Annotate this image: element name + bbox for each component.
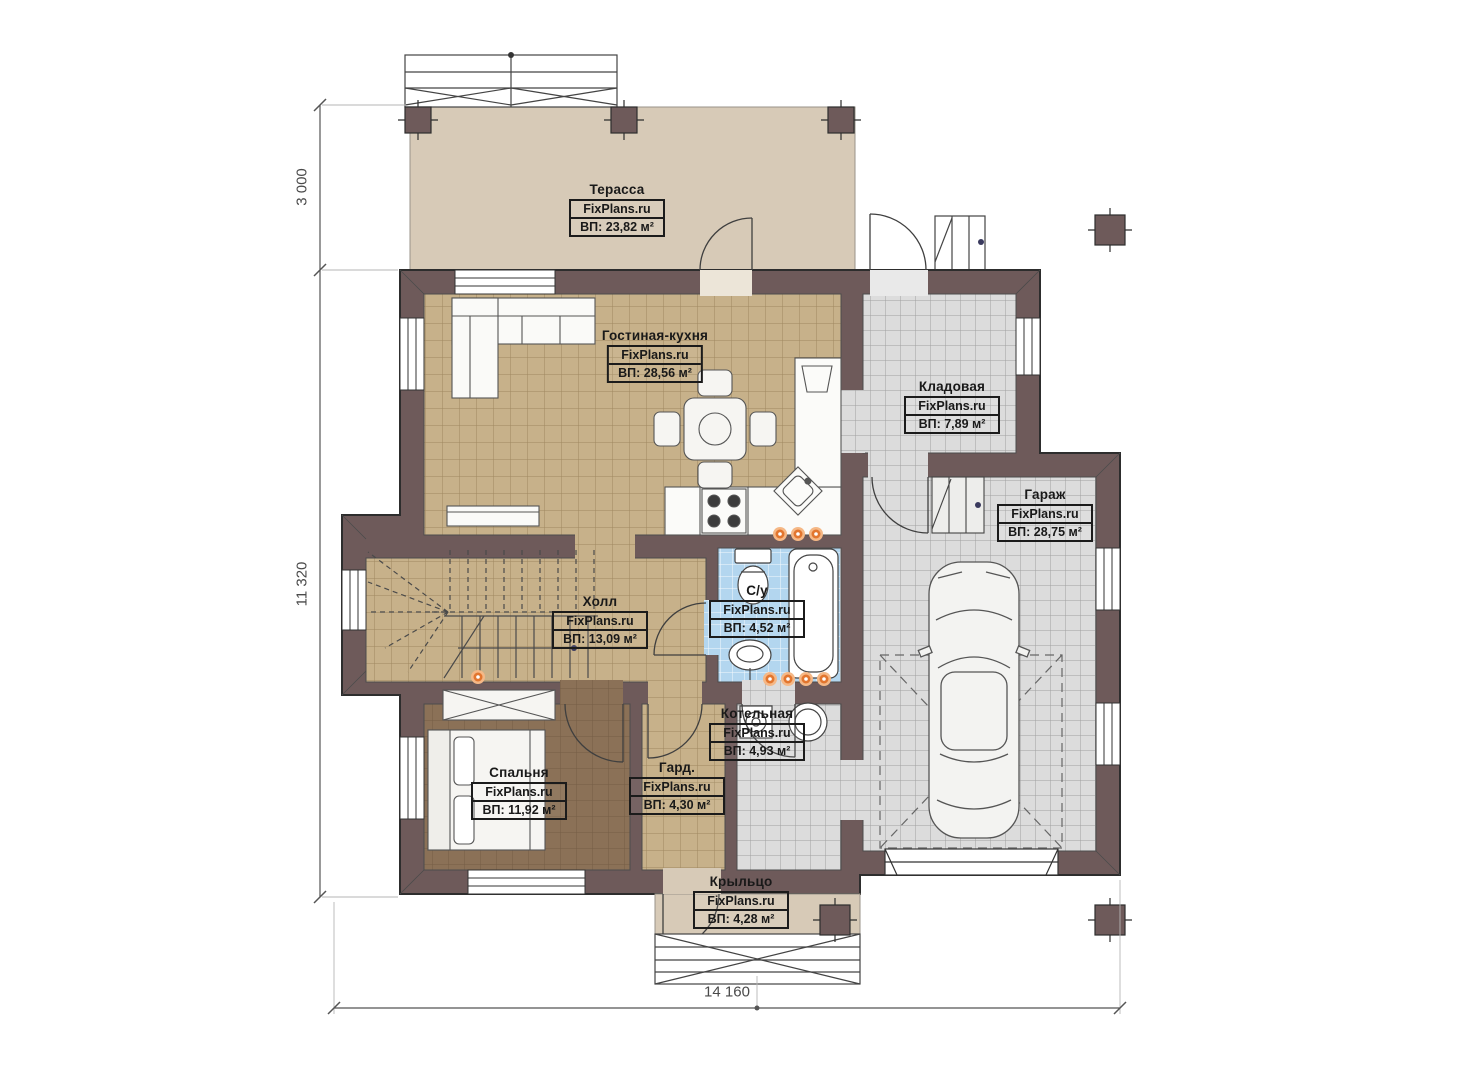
dimension-label-14160: 14 160 <box>704 984 750 1001</box>
brand-text: FixPlans.ru <box>711 725 803 743</box>
window <box>400 318 424 390</box>
column-marker <box>1088 898 1132 942</box>
room-info-box: FixPlans.ru ВП: 11,92 м² <box>471 782 567 820</box>
brand-text: FixPlans.ru <box>695 893 787 911</box>
heating-dot <box>471 670 485 684</box>
room-info-box: FixPlans.ru ВП: 28,56 м² <box>607 345 703 383</box>
room-label-hall: Холл FixPlans.ru ВП: 13,09 м² <box>552 594 648 649</box>
wardrobe <box>443 690 555 720</box>
column-marker <box>1088 208 1132 252</box>
room-name: Гостиная-кухня <box>602 328 708 343</box>
room-area: ВП: 28,56 м² <box>609 365 701 381</box>
room-name: Гард. <box>629 760 725 775</box>
room-label-boiler: Котельная FixPlans.ru ВП: 4,93 м² <box>709 706 805 761</box>
room-area: ВП: 23,82 м² <box>571 219 663 235</box>
room-name: Кладовая <box>904 379 1000 394</box>
brand-text: FixPlans.ru <box>631 779 723 797</box>
heating-dot <box>791 527 805 541</box>
dimension-label-11320: 11 320 <box>294 562 311 607</box>
garage-door <box>885 849 1058 875</box>
room-name: Крыльцо <box>693 874 789 889</box>
room-info-box: FixPlans.ru ВП: 4,93 м² <box>709 723 805 761</box>
dimension-line-bottom <box>328 1002 1126 1014</box>
room-label-bedroom: Спальня FixPlans.ru ВП: 11,92 м² <box>471 765 567 820</box>
room-label-storage: Кладовая FixPlans.ru ВП: 7,89 м² <box>904 379 1000 434</box>
heating-dot <box>799 672 813 686</box>
brand-text: FixPlans.ru <box>473 784 565 802</box>
room-info-box: FixPlans.ru ВП: 4,52 м² <box>709 600 805 638</box>
room-info-box: FixPlans.ru ВП: 28,75 м² <box>997 504 1093 542</box>
back-entrance-steps <box>935 216 985 270</box>
brand-text: FixPlans.ru <box>711 602 803 620</box>
brand-text: FixPlans.ru <box>906 398 998 416</box>
room-area: ВП: 13,09 м² <box>554 631 646 647</box>
brand-text: FixPlans.ru <box>609 347 701 365</box>
heating-dot <box>763 672 777 686</box>
floor-plan-canvas: Терасса FixPlans.ru ВП: 23,82 м² Гостина… <box>0 0 1473 1080</box>
room-info-box: FixPlans.ru ВП: 23,82 м² <box>569 199 665 237</box>
room-name: С/у <box>709 583 805 598</box>
room-info-box: FixPlans.ru ВП: 4,30 м² <box>629 777 725 815</box>
porch-steps <box>655 934 860 984</box>
dimension-label-3000: 3 000 <box>294 168 311 206</box>
room-info-box: FixPlans.ru ВП: 7,89 м² <box>904 396 1000 434</box>
room-name: Терасса <box>569 182 665 197</box>
room-info-box: FixPlans.ru ВП: 13,09 м² <box>552 611 648 649</box>
brand-text: FixPlans.ru <box>999 506 1091 524</box>
window <box>342 570 366 630</box>
column-marker <box>813 898 857 942</box>
room-area: ВП: 7,89 м² <box>906 416 998 432</box>
car <box>918 562 1029 838</box>
window <box>1016 318 1040 375</box>
room-name: Холл <box>552 594 648 609</box>
room-label-terrace: Терасса FixPlans.ru ВП: 23,82 м² <box>569 182 665 237</box>
door <box>870 214 926 270</box>
heating-dot <box>781 672 795 686</box>
room-area: ВП: 4,93 м² <box>711 743 803 759</box>
heating-dot <box>773 527 787 541</box>
window <box>455 270 555 294</box>
room-label-garage: Гараж FixPlans.ru ВП: 28,75 м² <box>997 487 1093 542</box>
heating-dot <box>817 672 831 686</box>
window <box>468 870 585 894</box>
room-area: ВП: 4,52 м² <box>711 620 803 636</box>
window <box>1096 548 1120 610</box>
room-name: Котельная <box>709 706 805 721</box>
room-info-box: FixPlans.ru ВП: 4,28 м² <box>693 891 789 929</box>
window <box>1096 703 1120 765</box>
tv-console <box>447 506 539 526</box>
room-name: Спальня <box>471 765 567 780</box>
room-name: Гараж <box>997 487 1093 502</box>
room-area: ВП: 11,92 м² <box>473 802 565 818</box>
room-label-porch: Крыльцо FixPlans.ru ВП: 4,28 м² <box>693 874 789 929</box>
garage-steps <box>932 477 984 533</box>
room-area: ВП: 4,28 м² <box>695 911 787 927</box>
brand-text: FixPlans.ru <box>554 613 646 631</box>
heating-dot <box>809 527 823 541</box>
stove <box>702 489 746 533</box>
room-area: ВП: 4,30 м² <box>631 797 723 813</box>
terrace-steps <box>405 52 617 107</box>
dimension-line-left <box>314 99 326 903</box>
brand-text: FixPlans.ru <box>571 201 663 219</box>
floor-hall <box>366 558 706 682</box>
room-label-wardrobe: Гард. FixPlans.ru ВП: 4,30 м² <box>629 760 725 815</box>
room-label-bathroom: С/у FixPlans.ru ВП: 4,52 м² <box>709 583 805 638</box>
room-area: ВП: 28,75 м² <box>999 524 1091 540</box>
room-label-living-kitchen: Гостиная-кухня FixPlans.ru ВП: 28,56 м² <box>602 328 708 383</box>
window <box>400 737 424 819</box>
